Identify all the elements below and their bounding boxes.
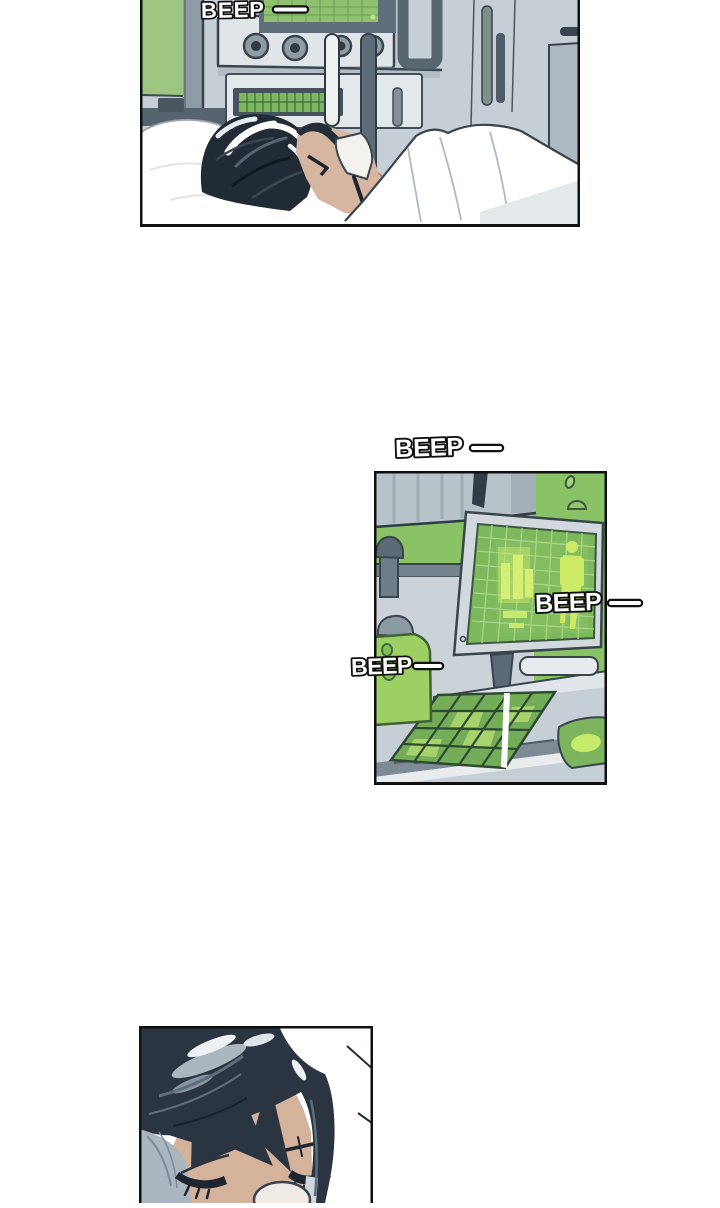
svg-text:BEEP: BEEP — [351, 652, 413, 680]
svg-text:BEEP: BEEP — [395, 433, 464, 463]
svg-text:BEEP: BEEP — [535, 588, 602, 617]
svg-text:BEEP: BEEP — [201, 0, 265, 23]
